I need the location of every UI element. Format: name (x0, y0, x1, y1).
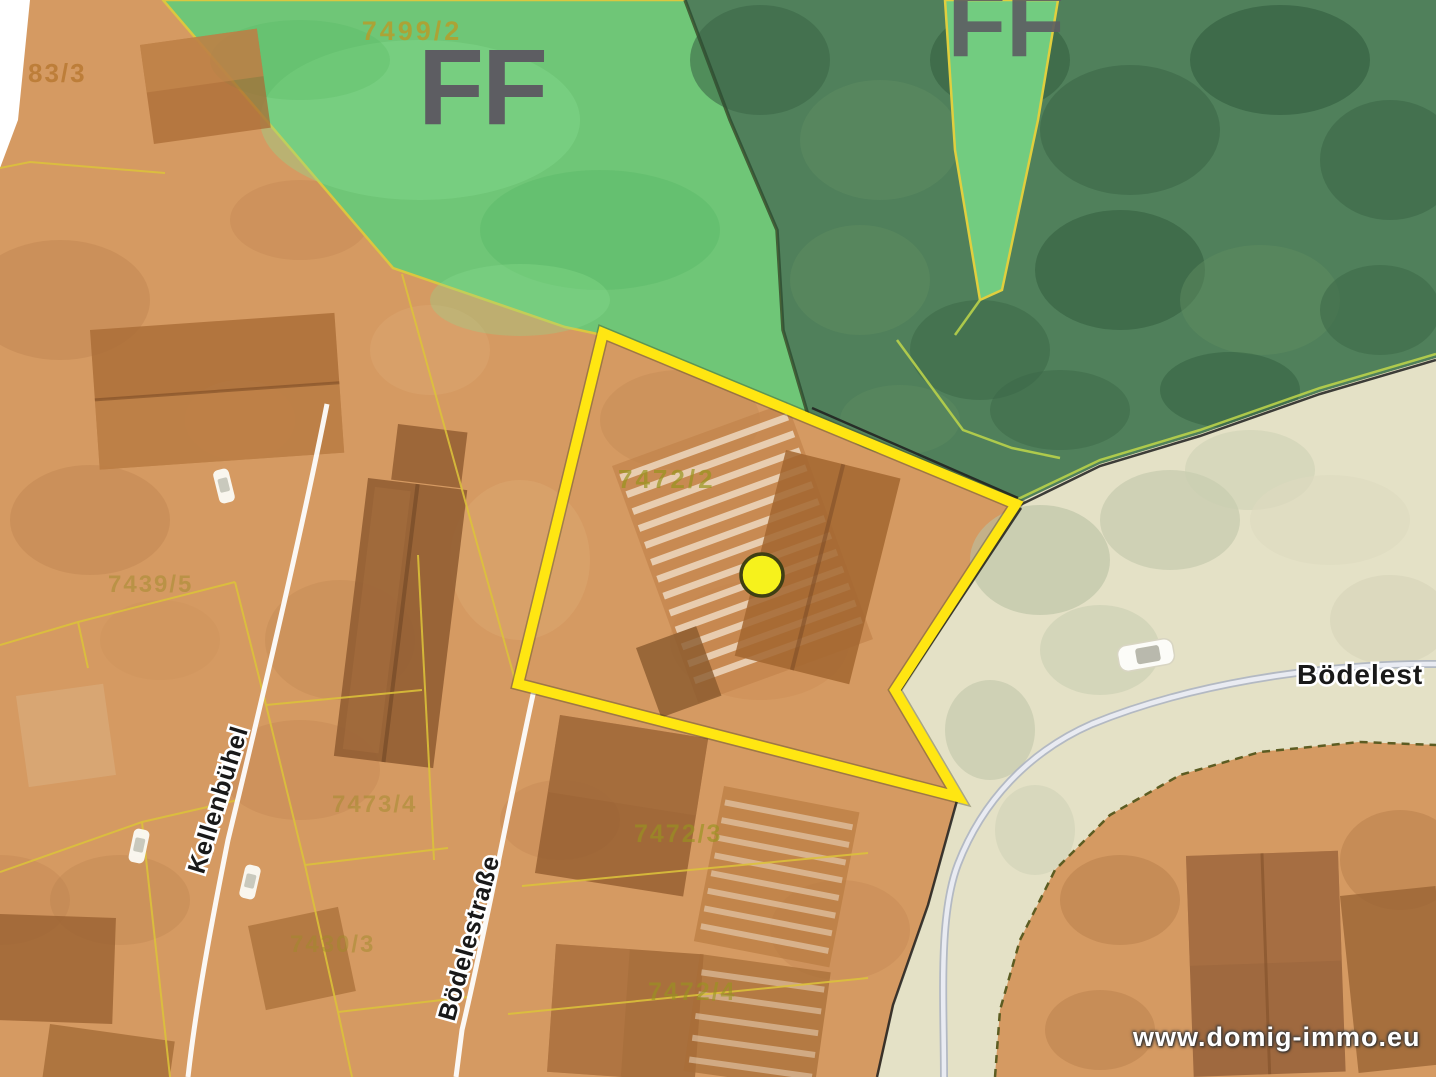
building (547, 944, 704, 1077)
building (90, 313, 344, 470)
map-canvas: 83/3 7499/2 FF FF 7439/5 7472/2 7473/4 7… (0, 0, 1436, 1077)
watermark: www.domig-immo.eu (1133, 1022, 1421, 1053)
street-label-boedelestrasse-east: Bödelest (1297, 659, 1423, 690)
zone-label-ff-clipped: FF (947, 0, 1064, 77)
parcel-number-label: 83/3 (28, 58, 87, 88)
parcel-number-label-selected: 7472/2 (618, 464, 716, 494)
building (391, 424, 467, 488)
building (0, 914, 116, 1024)
parcel-number-label: 7472/4 (648, 978, 736, 1006)
parcel-number-label: 7473/4 (332, 791, 417, 818)
parcel-number-label: 7439/5 (108, 571, 193, 598)
parcel-number-label: 7430/3 (290, 931, 375, 958)
selected-parcel-marker[interactable] (741, 554, 783, 596)
building (16, 684, 116, 787)
zone-label-ff: FF (418, 26, 546, 147)
building (140, 29, 271, 144)
building (535, 715, 708, 896)
zoning-map[interactable]: 83/3 7499/2 FF FF 7439/5 7472/2 7473/4 7… (0, 0, 1436, 1077)
parcel-number-label: 7472/3 (634, 820, 722, 848)
terrace-building (684, 954, 831, 1077)
